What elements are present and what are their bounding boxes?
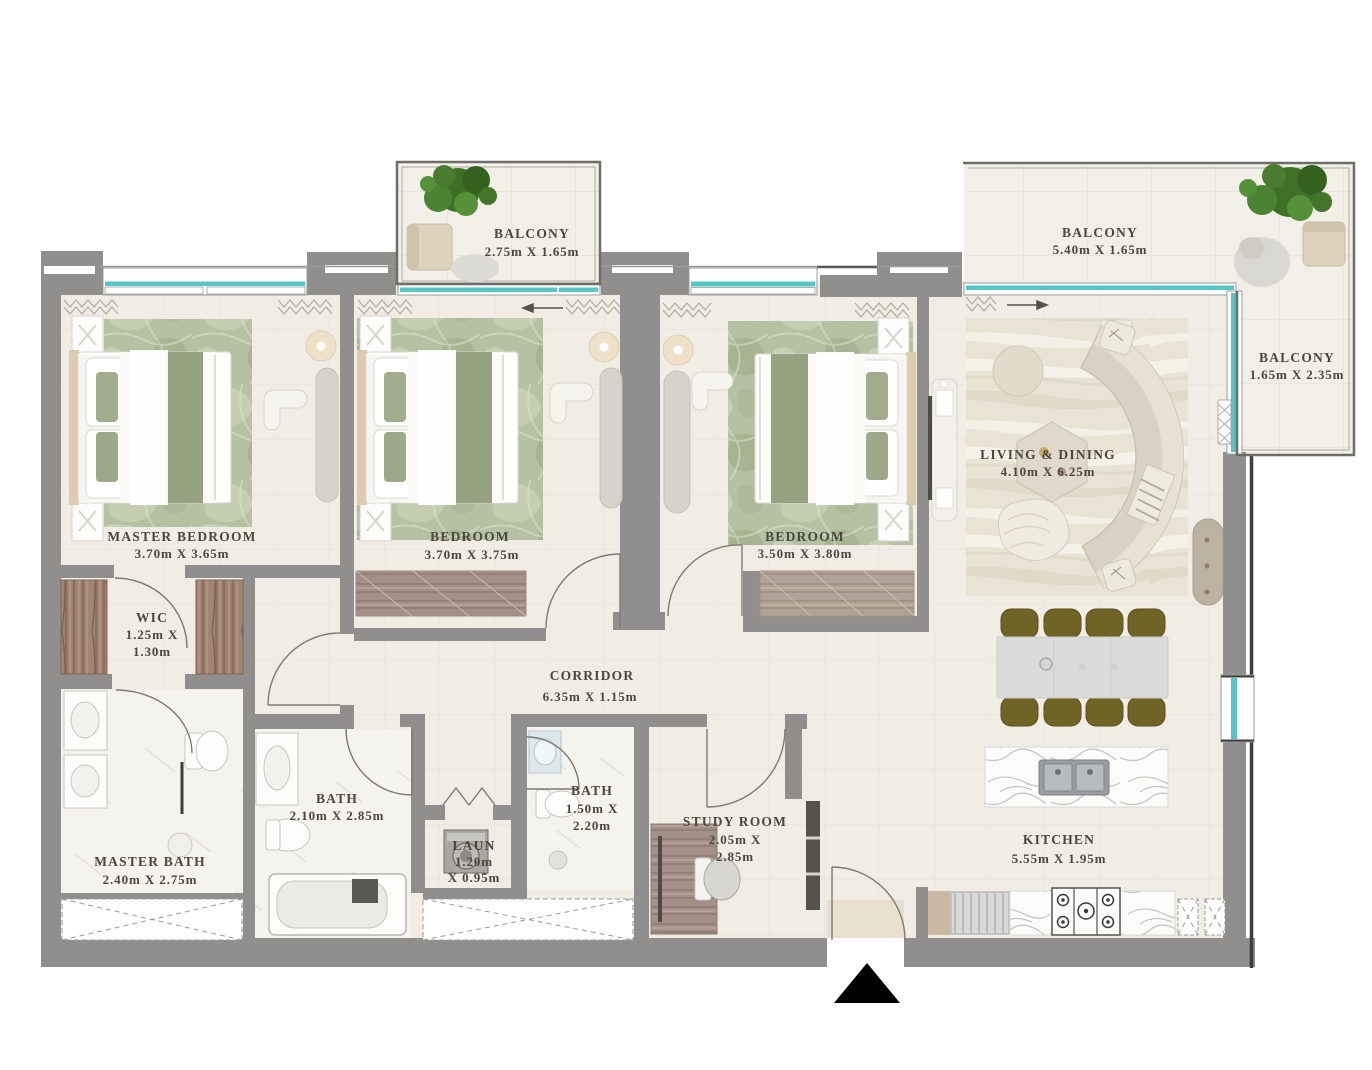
- svg-text:3.70m X 3.75m: 3.70m X 3.75m: [425, 547, 520, 562]
- svg-text:BATH: BATH: [571, 783, 613, 798]
- svg-text:3.50m X 3.80m: 3.50m X 3.80m: [758, 546, 853, 561]
- svg-text:CORRIDOR: CORRIDOR: [550, 668, 635, 683]
- svg-text:WIC: WIC: [136, 610, 168, 625]
- svg-text:BATH: BATH: [316, 791, 358, 806]
- svg-text:1.20m: 1.20m: [455, 854, 493, 869]
- svg-text:1.65m X 2.35m: 1.65m X 2.35m: [1250, 367, 1345, 382]
- svg-text:BALCONY: BALCONY: [1062, 225, 1138, 240]
- svg-text:BEDROOM: BEDROOM: [430, 529, 510, 544]
- svg-text:2.05m X: 2.05m X: [709, 832, 762, 847]
- svg-text:2.85m: 2.85m: [716, 849, 754, 864]
- svg-text:LAUN: LAUN: [452, 838, 495, 853]
- svg-text:MASTER BEDROOM: MASTER BEDROOM: [107, 529, 256, 544]
- svg-text:6.35m X 1.15m: 6.35m X 1.15m: [543, 689, 638, 704]
- svg-text:5.55m X 1.95m: 5.55m X 1.95m: [1012, 851, 1107, 866]
- svg-text:BALCONY: BALCONY: [1259, 350, 1335, 365]
- svg-text:5.40m X 1.65m: 5.40m X 1.65m: [1053, 242, 1148, 257]
- svg-text:3.70m X 3.65m: 3.70m X 3.65m: [135, 546, 230, 561]
- svg-text:BEDROOM: BEDROOM: [765, 529, 845, 544]
- svg-text:1.30m: 1.30m: [133, 644, 171, 659]
- svg-text:MASTER BATH: MASTER BATH: [94, 854, 206, 869]
- svg-text:BALCONY: BALCONY: [494, 226, 570, 241]
- svg-text:1.50m X: 1.50m X: [566, 801, 619, 816]
- svg-text:2.40m X 2.75m: 2.40m X 2.75m: [103, 872, 198, 887]
- svg-text:LIVING & DINING: LIVING & DINING: [980, 447, 1116, 462]
- svg-text:KITCHEN: KITCHEN: [1023, 832, 1095, 847]
- svg-text:X 0.95m: X 0.95m: [448, 870, 501, 885]
- svg-text:1.25m X: 1.25m X: [126, 627, 179, 642]
- svg-text:STUDY ROOM: STUDY ROOM: [683, 814, 787, 829]
- svg-text:2.10m X 2.85m: 2.10m X 2.85m: [290, 808, 385, 823]
- svg-text:2.75m X 1.65m: 2.75m X 1.65m: [485, 244, 580, 259]
- svg-text:2.20m: 2.20m: [573, 818, 611, 833]
- svg-text:4.10m X 6.25m: 4.10m X 6.25m: [1001, 464, 1096, 479]
